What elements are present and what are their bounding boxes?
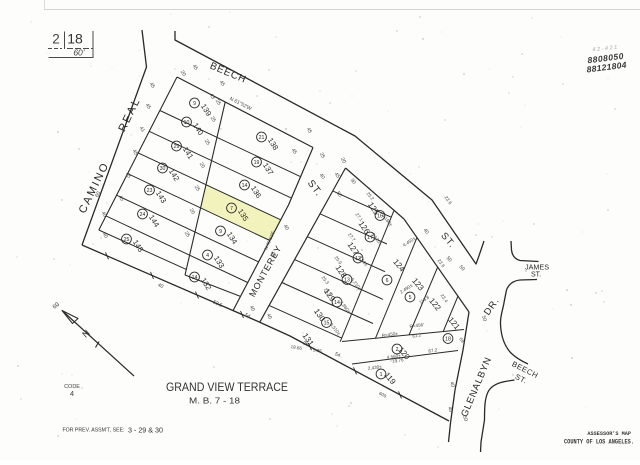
svg-text:7: 7	[230, 206, 233, 212]
svg-text:60’: 60’	[73, 48, 84, 58]
svg-text:2: 2	[52, 32, 60, 47]
svg-text:18: 18	[67, 31, 83, 47]
svg-text:6: 6	[386, 278, 389, 284]
svg-text:24: 24	[140, 212, 146, 218]
svg-text:COUNTY OF LOS ANGELES.: COUNTY OF LOS ANGELES.	[564, 439, 634, 446]
svg-text:29: 29	[174, 144, 180, 150]
svg-text:21: 21	[259, 135, 265, 141]
svg-text:4: 4	[206, 253, 209, 259]
svg-text:FOR PREV. ASSM’T, SEE:: FOR PREV. ASSM’T, SEE:	[63, 428, 125, 434]
svg-text:13: 13	[344, 277, 350, 283]
svg-text:JAMES: JAMES	[525, 265, 549, 272]
svg-text:18: 18	[445, 336, 451, 342]
svg-text:1: 1	[380, 372, 383, 378]
svg-text:ASSESSOR’S MAP: ASSESSOR’S MAP	[587, 431, 631, 437]
svg-text:9: 9	[193, 101, 196, 107]
svg-text:2: 2	[396, 347, 399, 353]
svg-text:5: 5	[409, 295, 412, 301]
svg-text:14: 14	[242, 183, 248, 189]
svg-text:ST.: ST.	[531, 272, 541, 279]
svg-text:GRAND VIEW TERRACE: GRAND VIEW TERRACE	[166, 382, 288, 394]
svg-text:14: 14	[192, 275, 198, 281]
svg-text:23: 23	[147, 188, 153, 194]
svg-text:10: 10	[184, 120, 190, 126]
svg-text:25: 25	[124, 237, 130, 243]
svg-text:15: 15	[324, 320, 330, 326]
svg-text:4: 4	[70, 389, 74, 398]
svg-text:M. B. 7 - 18: M. B. 7 - 18	[189, 396, 240, 406]
svg-text:9: 9	[219, 229, 222, 235]
svg-text:19: 19	[254, 160, 260, 166]
svg-text:30: 30	[160, 166, 166, 172]
svg-text:3 - 29 & 30: 3 - 29 & 30	[128, 426, 163, 435]
